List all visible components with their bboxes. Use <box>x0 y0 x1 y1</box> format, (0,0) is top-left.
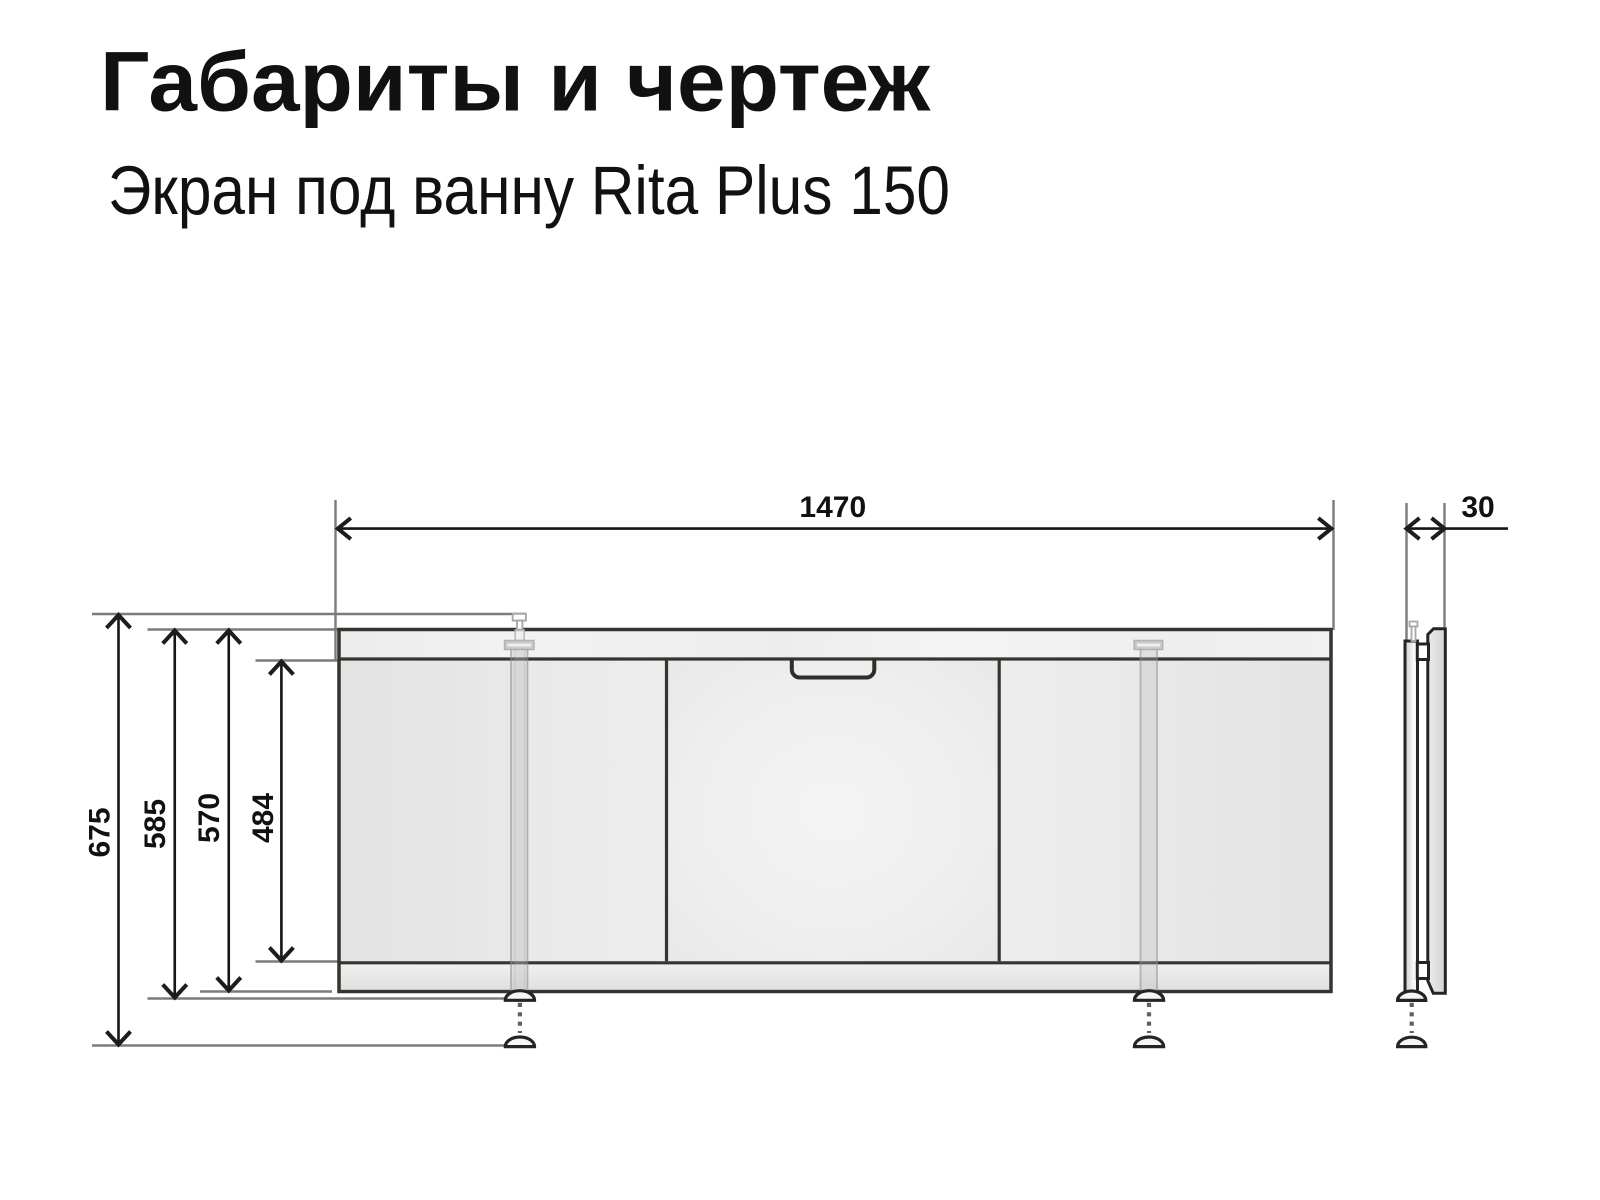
svg-text:Экран под ванну Rita Plus 150: Экран под ванну Rita Plus 150 <box>108 152 950 229</box>
svg-text:585: 585 <box>139 799 172 849</box>
svg-text:1470: 1470 <box>799 491 866 524</box>
svg-text:Габариты и чертеж: Габариты и чертеж <box>100 35 931 129</box>
svg-text:675: 675 <box>84 807 117 857</box>
svg-text:30: 30 <box>1461 491 1494 524</box>
svg-text:484: 484 <box>247 793 280 843</box>
svg-text:570: 570 <box>193 793 226 843</box>
